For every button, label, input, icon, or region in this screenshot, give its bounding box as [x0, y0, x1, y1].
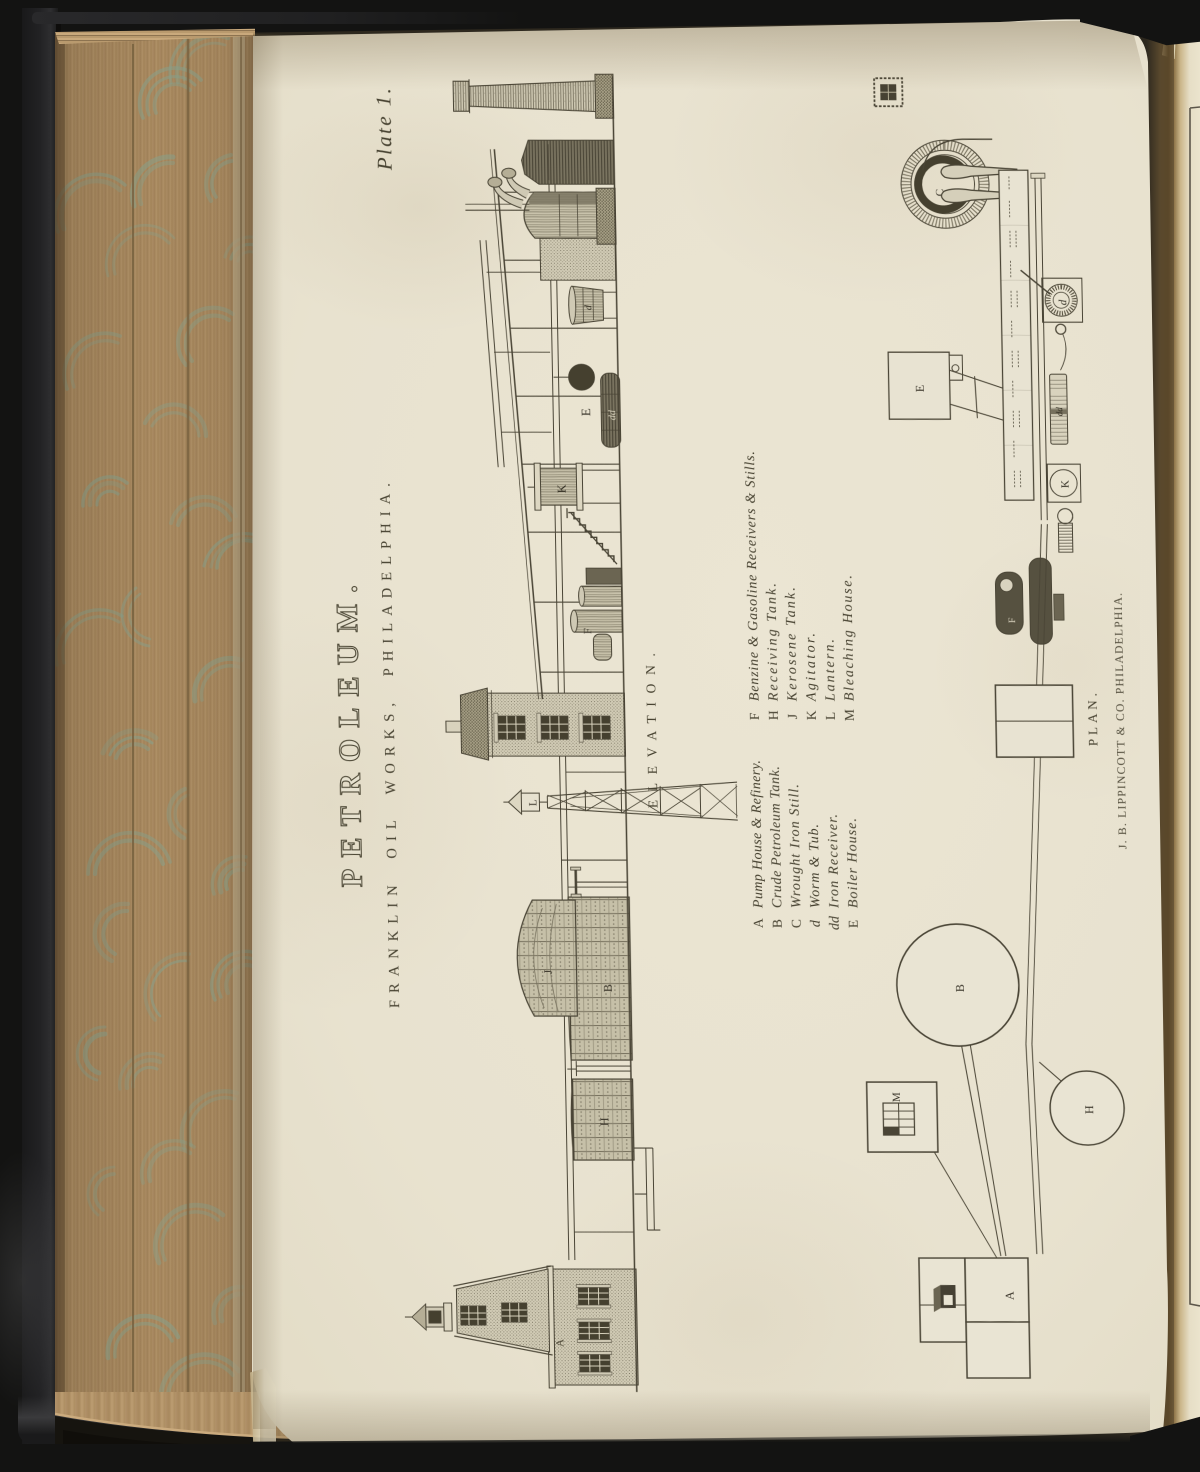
svg-text:E: E — [578, 408, 593, 416]
svg-text:Lantern.: Lantern. — [822, 639, 838, 702]
svg-text:E: E — [913, 385, 927, 392]
svg-text:B: B — [601, 984, 615, 992]
svg-text:Receiving Tank.: Receiving Tank. — [764, 583, 781, 702]
svg-text:Benzine & Gasoline Receivers &: Benzine & Gasoline Receivers & Stills. — [743, 451, 763, 701]
svg-text:ELEVATION.: ELEVATION. — [643, 647, 661, 808]
svg-text:dd: dd — [828, 915, 843, 930]
svg-text:K: K — [804, 710, 819, 720]
svg-text:FRANKLIN OIL WORKS, PHILADELPH: FRANKLIN OIL WORKS, PHILADELPHIA. — [377, 479, 403, 1008]
svg-text:PLAN.: PLAN. — [1084, 690, 1100, 746]
svg-text:L: L — [527, 799, 539, 806]
svg-text:d: d — [809, 919, 824, 927]
svg-text:A: A — [554, 1339, 566, 1347]
svg-text:F: F — [1007, 617, 1018, 623]
svg-text:Iron Receiver.: Iron Receiver. — [826, 814, 843, 909]
svg-text:dd: dd — [1054, 407, 1064, 416]
svg-text:K: K — [555, 484, 569, 493]
svg-text:Boiler House.: Boiler House. — [845, 818, 862, 908]
svg-text:J: J — [785, 714, 800, 719]
svg-text:Kerosene Tank.: Kerosene Tank. — [783, 587, 800, 702]
svg-text:Agitator.: Agitator. — [803, 633, 819, 702]
svg-text:K: K — [1060, 480, 1072, 488]
svg-text:PETROLEUM.: PETROLEUM. — [330, 577, 369, 887]
svg-text:A: A — [1003, 1291, 1017, 1300]
svg-text:H: H — [1082, 1105, 1096, 1114]
svg-text:L: L — [823, 712, 838, 720]
svg-text:J: J — [542, 969, 554, 974]
svg-text:Bleaching House.: Bleaching House. — [840, 575, 857, 701]
svg-text:A: A — [751, 918, 766, 928]
svg-text:M: M — [842, 709, 857, 721]
svg-text:F: F — [582, 628, 594, 634]
svg-text:Wrought Iron Still.: Wrought Iron Still. — [787, 784, 804, 908]
svg-text:B: B — [770, 919, 785, 928]
svg-text:H: H — [597, 1117, 611, 1126]
svg-text:E: E — [846, 920, 861, 928]
svg-text:F: F — [747, 712, 762, 720]
svg-text:dd: dd — [607, 409, 618, 420]
svg-text:C: C — [789, 919, 804, 928]
svg-text:Crude Petroleum Tank.: Crude Petroleum Tank. — [768, 766, 786, 908]
svg-text:Plate 1.: Plate 1. — [371, 88, 397, 171]
svg-text:d: d — [1057, 299, 1069, 305]
svg-text:Pump House & Refinery.: Pump House & Refinery. — [749, 760, 767, 909]
svg-text:B: B — [953, 984, 967, 992]
svg-text:Worm & Tub.: Worm & Tub. — [807, 824, 824, 908]
svg-text:M: M — [891, 1092, 903, 1102]
svg-text:H: H — [766, 710, 781, 720]
svg-text:J. B. LIPPINCOTT & CO. PHILADE: J. B. LIPPINCOTT & CO. PHILADELPHIA. — [1113, 592, 1130, 849]
